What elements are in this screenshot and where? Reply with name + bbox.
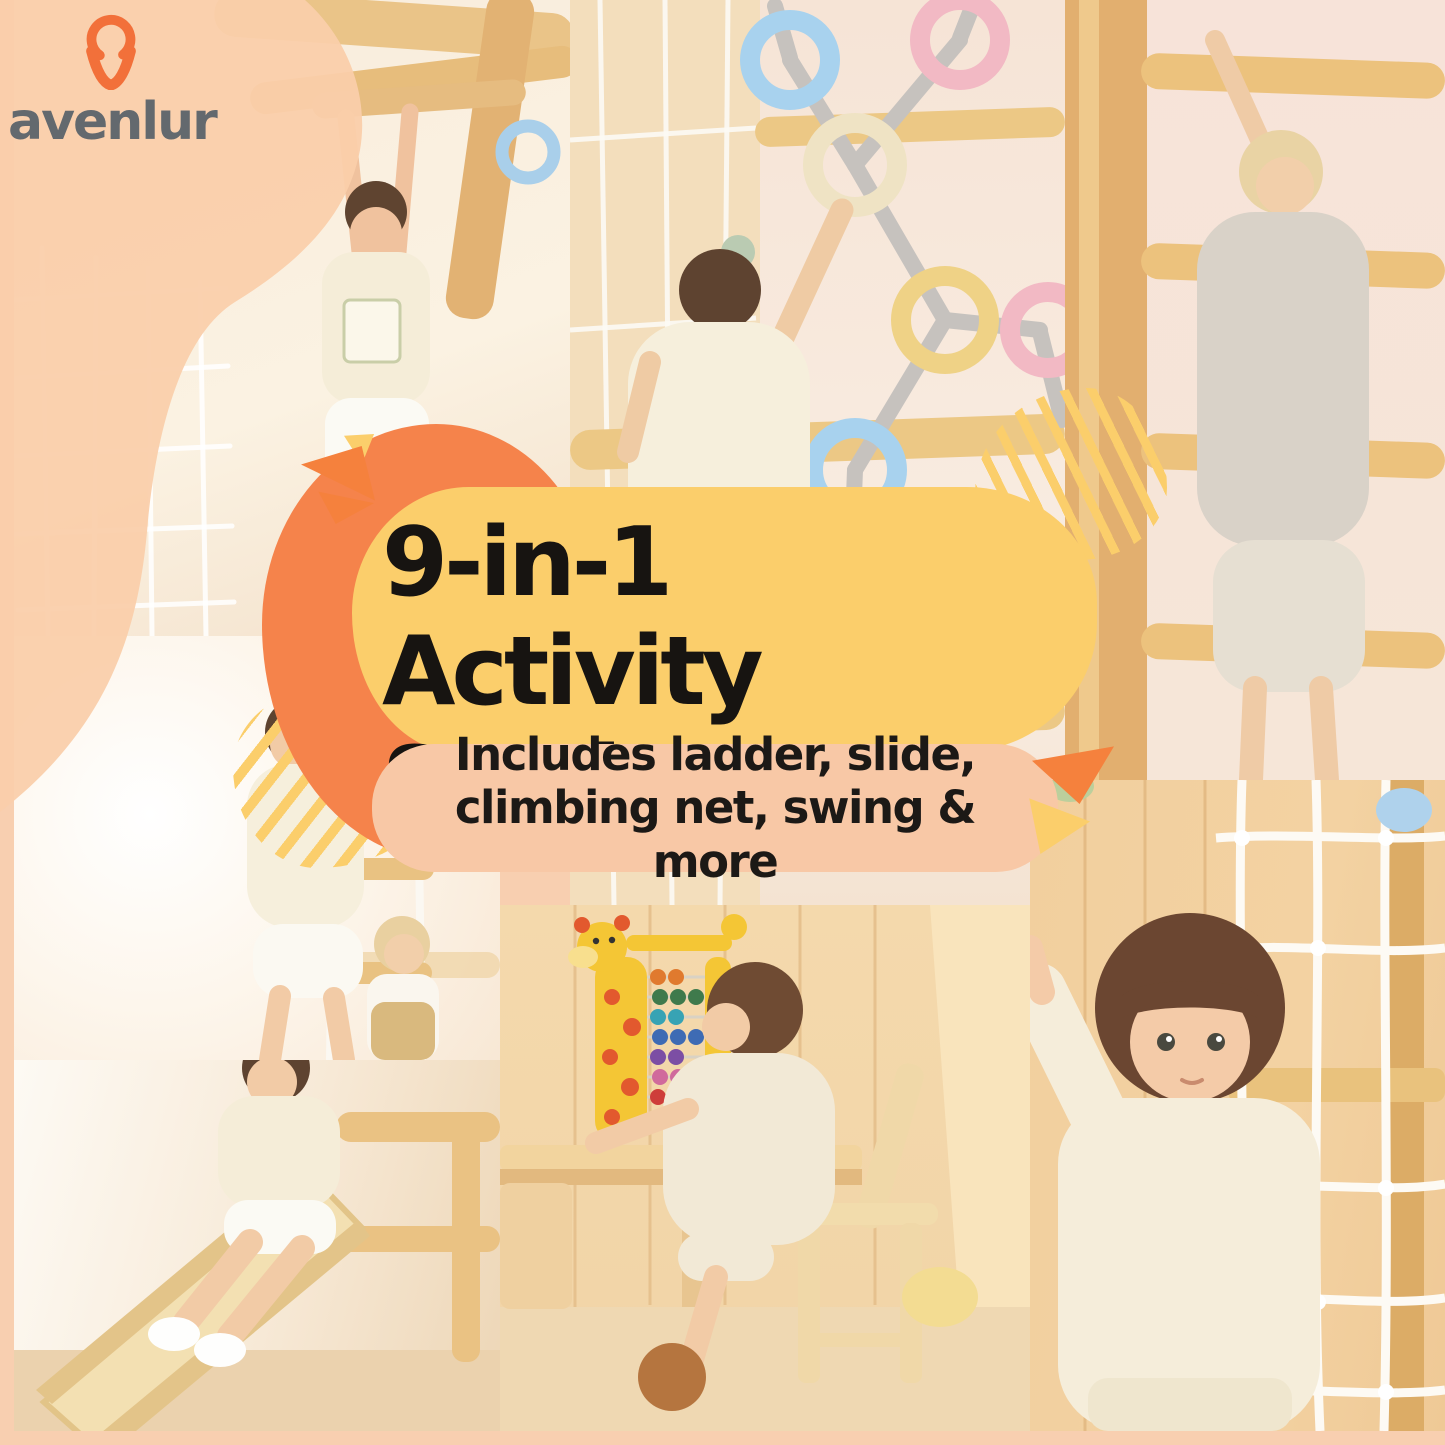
climbing-hold-yellow bbox=[902, 1267, 978, 1327]
photo-abacus-desk bbox=[500, 905, 1030, 1431]
photo-climbing-wall bbox=[1030, 780, 1445, 1431]
toddler-figure bbox=[367, 916, 439, 1060]
abacus-desk-illustration bbox=[500, 905, 1030, 1431]
photo-slide bbox=[14, 1060, 500, 1431]
wall-bars-illustration bbox=[1065, 0, 1445, 780]
net-bar bbox=[1228, 1068, 1445, 1102]
climbing-hold-blue bbox=[1376, 788, 1432, 832]
climbing-wall-illustration bbox=[1030, 780, 1445, 1431]
boy-figure bbox=[1030, 913, 1320, 1431]
brand-name: avenlur bbox=[8, 92, 212, 152]
slide-illustration bbox=[14, 1060, 500, 1431]
brand-logo: avenlur bbox=[0, 0, 230, 170]
child-figure bbox=[1197, 40, 1369, 780]
product-hero-image: 9-in-1 Activity Station Includes ladder,… bbox=[0, 0, 1445, 1445]
photo-wall-bars bbox=[1065, 0, 1445, 780]
avenlur-figure-icon bbox=[82, 14, 140, 90]
girl-figure bbox=[148, 1060, 340, 1367]
